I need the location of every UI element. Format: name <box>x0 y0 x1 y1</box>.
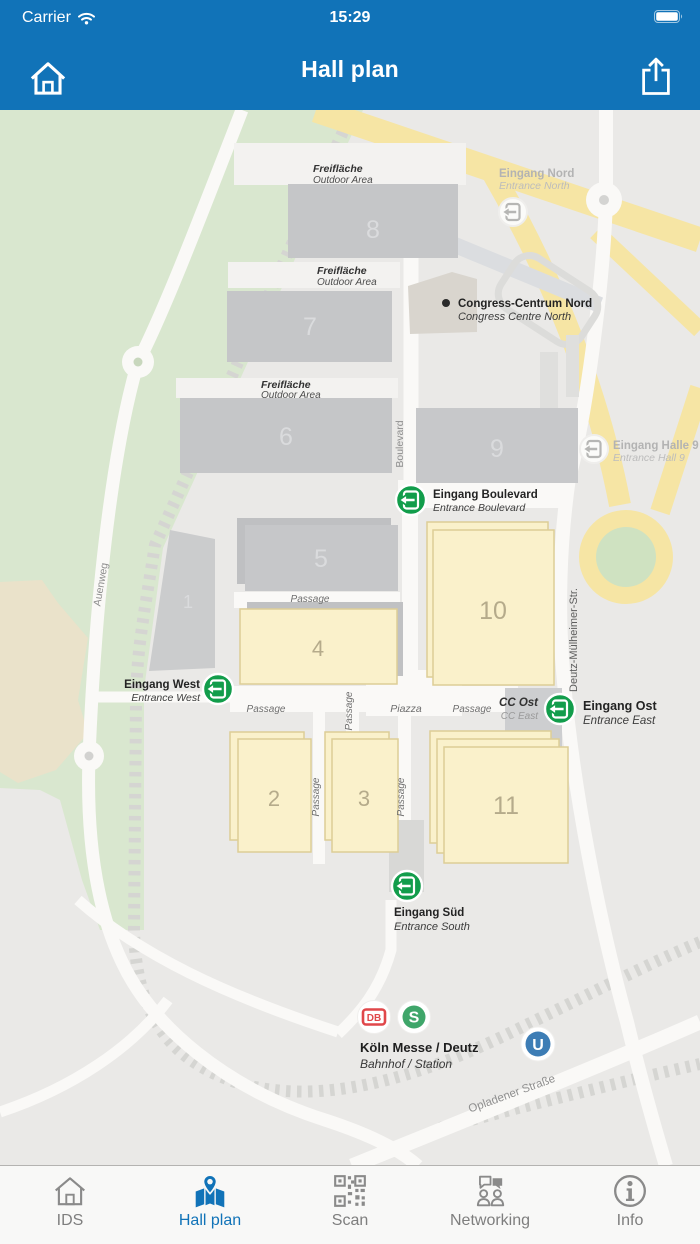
hall-11-number: 11 <box>493 792 519 820</box>
entrance-ost-de: Eingang Ost <box>583 699 657 713</box>
entrance-west[interactable]: Eingang West Entrance West <box>124 674 233 704</box>
hall-8-number: 8 <box>366 216 380 244</box>
hall-7-number: 7 <box>303 313 317 341</box>
clock: 15:29 <box>0 9 700 27</box>
passage-label: Passage <box>291 594 330 605</box>
freiflaeche-label: Freifläche <box>317 265 367 277</box>
station-en: Bahnhof / Station <box>360 1057 452 1071</box>
home-icon <box>52 1173 88 1209</box>
tab-networking-label: Networking <box>450 1212 530 1230</box>
db-icon[interactable]: DB <box>358 1001 391 1034</box>
entrance-sued-en: Entrance South <box>394 921 470 933</box>
qr-code-icon <box>332 1173 368 1209</box>
congress-centre-label: Congress-Centrum Nord Congress Centre No… <box>442 298 592 323</box>
passage-label: Passage <box>247 704 286 715</box>
outdoor-area-label: Outdoor Area <box>317 277 377 288</box>
ubahn-icon[interactable]: U <box>521 1027 555 1061</box>
tab-hall-plan-label: Hall plan <box>179 1212 241 1230</box>
tab-bar: IDS Hall plan <box>0 1165 700 1244</box>
roundabout-large <box>588 519 664 595</box>
outdoor-area-label: Outdoor Area <box>261 390 321 401</box>
battery-icon <box>654 10 684 28</box>
hall-5-number: 5 <box>314 545 328 573</box>
entrance-boulevard-de: Eingang Boulevard <box>433 489 538 501</box>
share-icon <box>634 55 678 99</box>
deutz-muelheimer-label: Deutz-Mülheimer-Str. <box>568 588 580 692</box>
hall-2-number: 2 <box>268 786 280 811</box>
sbahn-icon[interactable]: S <box>398 1001 431 1034</box>
piazza-label: Piazza <box>390 703 422 715</box>
station-de: Köln Messe / Deutz <box>360 1040 479 1055</box>
outdoor-area-label: Outdoor Area <box>313 175 373 186</box>
chat-people-icon <box>472 1173 508 1209</box>
nav-bar: Hall plan <box>0 44 700 110</box>
tab-networking[interactable]: Networking <box>420 1166 560 1244</box>
svg-text:DB: DB <box>367 1013 381 1024</box>
entrance-boulevard-en: Entrance Boulevard <box>433 502 526 514</box>
cc-ost-de: CC Ost <box>499 697 539 709</box>
svg-text:U: U <box>532 1037 544 1054</box>
entrance-nord-de: Eingang Nord <box>499 168 574 180</box>
entrance-ost-en: Entrance East <box>583 715 656 727</box>
congress-en: Congress Centre North <box>458 311 571 323</box>
tab-scan-label: Scan <box>332 1212 368 1230</box>
boulevard-label: Boulevard <box>394 420 406 467</box>
freiflaeche-label: Freifläche <box>313 163 363 175</box>
entrance-sued-de: Eingang Süd <box>394 907 464 919</box>
entrance-west-en: Entrance West <box>131 692 201 704</box>
hall-3-number: 3 <box>358 786 370 811</box>
share-button[interactable] <box>630 52 682 104</box>
bullet-icon <box>442 299 450 307</box>
entrance-nord-en: Entrance North <box>499 180 570 192</box>
hall-4-number: 4 <box>312 636 324 661</box>
hall-10-number: 10 <box>479 597 507 625</box>
passage-label: Passage <box>311 777 322 816</box>
tab-ids-label: IDS <box>57 1212 84 1230</box>
tab-hall-plan[interactable]: Hall plan <box>140 1166 280 1244</box>
congress-de: Congress-Centrum Nord <box>458 298 592 310</box>
status-bar: Carrier 15:29 <box>0 0 700 44</box>
svg-text:S: S <box>409 1010 420 1027</box>
header: Carrier 15:29 <box>0 0 700 110</box>
hall-1-number: 1 <box>183 592 193 612</box>
entrance-halle9-en: Entrance Hall 9 <box>613 452 685 464</box>
tab-info[interactable]: Info <box>560 1166 700 1244</box>
page-title: Hall plan <box>0 56 700 83</box>
hall-9-number: 9 <box>490 435 504 463</box>
entrance-halle9-de: Eingang Halle 9 <box>613 440 699 452</box>
tab-scan[interactable]: Scan <box>280 1166 420 1244</box>
entrance-boulevard[interactable]: Eingang Boulevard Entrance Boulevard <box>396 485 538 515</box>
entrance-west-de: Eingang West <box>124 679 200 691</box>
passage-label: Passage <box>453 704 492 715</box>
tab-ids[interactable]: IDS <box>0 1166 140 1244</box>
passage-label: Passage <box>396 777 407 816</box>
entrance-ost[interactable]: Eingang Ost Entrance East <box>545 694 657 727</box>
app-window: Carrier 15:29 <box>0 0 700 1244</box>
passage-label: Passage <box>344 691 355 730</box>
hall-plan-map[interactable]: 8 7 6 9 5 1 4 10 2 3 11 Freifläche Outdo… <box>0 110 700 1166</box>
info-icon <box>612 1173 648 1209</box>
tab-info-label: Info <box>617 1212 644 1230</box>
entrance-halle9[interactable]: Eingang Halle 9 Entrance Hall 9 <box>580 435 699 464</box>
cc-ost-en: CC East <box>501 711 539 722</box>
hall-6-number: 6 <box>279 423 293 451</box>
map-pin-icon <box>192 1173 228 1209</box>
